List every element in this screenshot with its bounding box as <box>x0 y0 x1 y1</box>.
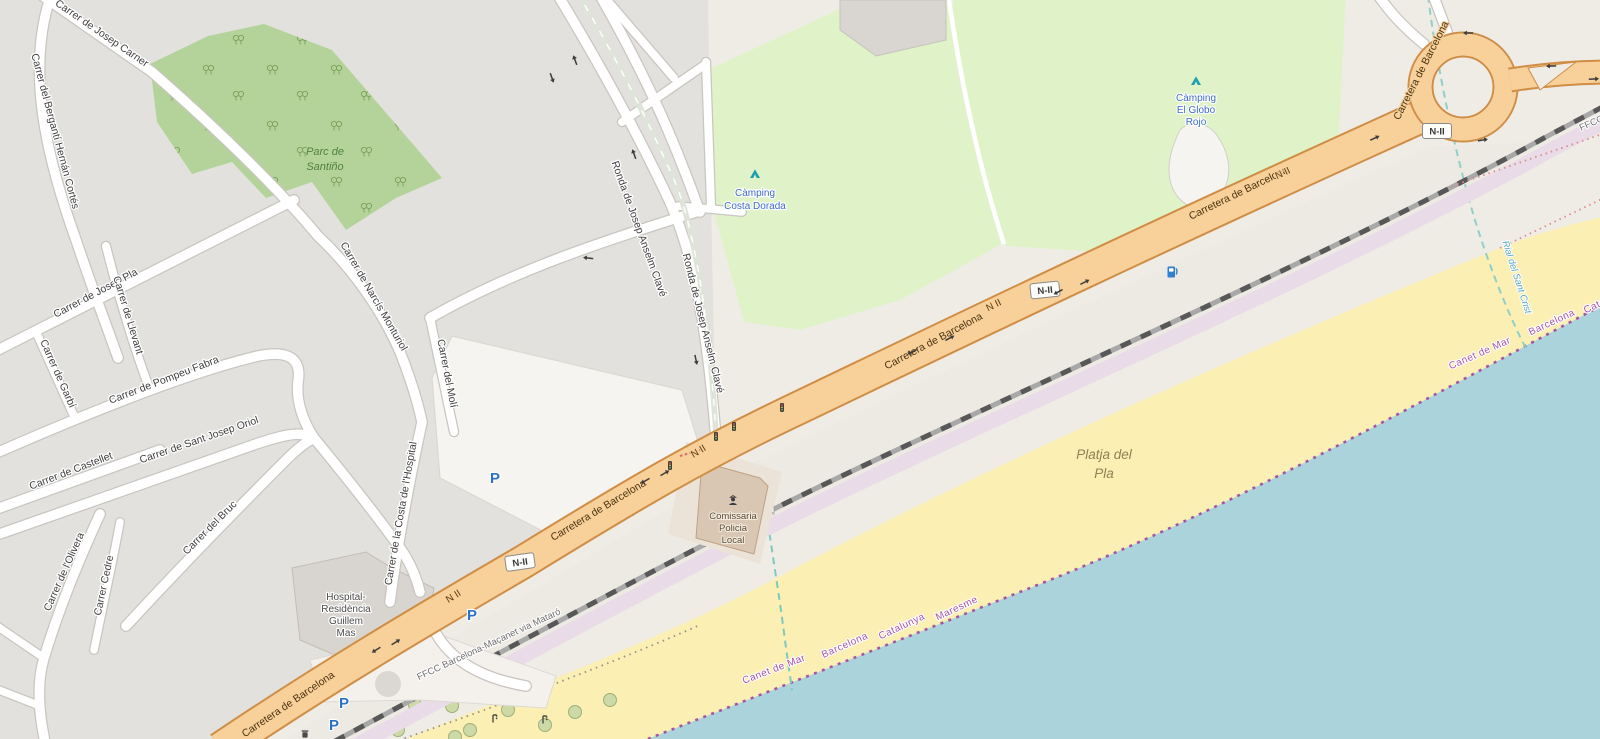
svg-text:N-II: N-II <box>512 556 529 569</box>
traffic-signal-icon <box>780 403 784 412</box>
parking-icon: P <box>329 717 339 734</box>
parking-lot-island <box>375 671 401 697</box>
svg-text:N-II: N-II <box>1037 285 1053 298</box>
park-label2: Santiño <box>306 161 343 173</box>
camping-globo-label1: Càmping <box>1176 93 1216 104</box>
park-label: Parc de <box>306 146 344 158</box>
traffic-signal-icon <box>668 461 672 470</box>
svg-text:N-II: N-II <box>1429 127 1444 138</box>
camping-globo-label3: Rojo <box>1186 117 1207 128</box>
police-label3: Local <box>722 535 745 546</box>
hospital-label4: Mas <box>337 628 356 639</box>
camping-costa-label2: Costa Dorada <box>724 201 786 212</box>
beach-label1: Platja del <box>1076 447 1133 462</box>
map-canvas[interactable]: Carrer de Josep Carner Carrer del Bergan… <box>0 0 1600 739</box>
hospital-label2: Residència <box>321 604 371 615</box>
police-label1: Comissaria <box>709 511 757 522</box>
beach-label2: Pla <box>1094 466 1114 481</box>
n2-badge-2: N-II <box>1030 281 1060 299</box>
traffic-signal-icon <box>714 432 718 441</box>
parking-icon: P <box>490 470 500 487</box>
hospital-label3: Guillem <box>329 616 363 627</box>
hospital-label1: Hospital- <box>326 592 365 603</box>
waste-basket-icon <box>302 730 309 737</box>
camping-costa-label1: Càmping <box>735 188 775 199</box>
parking-icon: P <box>467 607 477 624</box>
n2-badge-3: N-II <box>1423 124 1452 139</box>
parking-icon: P <box>339 695 349 712</box>
traffic-signal-icon <box>732 422 736 431</box>
camping-globo-label2: El Globo <box>1177 105 1216 116</box>
police-label2: Policia <box>719 523 748 534</box>
